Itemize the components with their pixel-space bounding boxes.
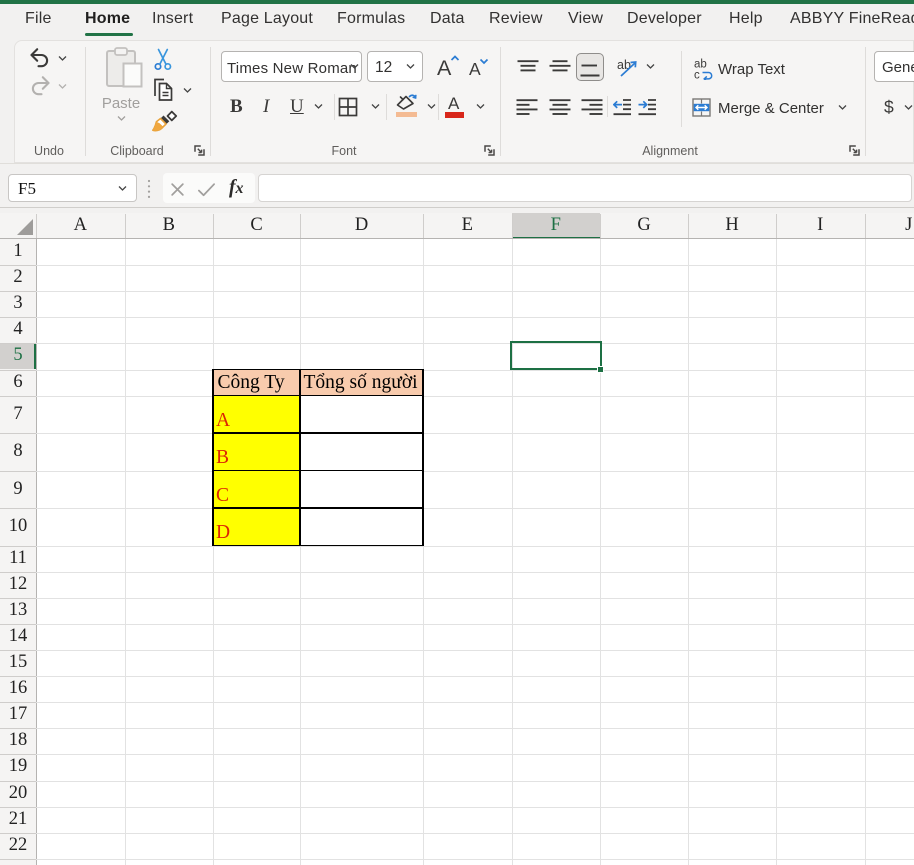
svg-text:A: A [437, 56, 452, 80]
svg-text:ab: ab [617, 58, 631, 72]
svg-text:c: c [694, 70, 700, 81]
svg-text:A: A [469, 59, 481, 79]
